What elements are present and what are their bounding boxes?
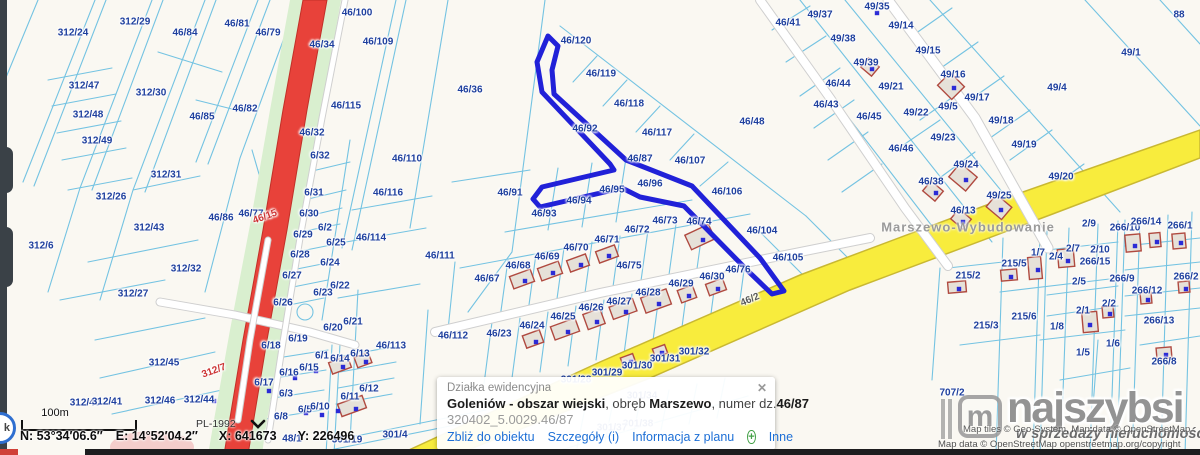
address-point	[1009, 275, 1013, 279]
parcel-label: 46/79	[255, 28, 280, 39]
parcel-label: 6/30	[299, 209, 318, 220]
parcel-label: 312/47	[69, 81, 100, 92]
address-point	[607, 254, 611, 258]
address-point	[523, 279, 527, 283]
coordinates-readout: N: 53°34′06.6″ E: 14°52′04.2″ X: 641673 …	[20, 429, 354, 443]
parcel-label: 1/7	[1031, 248, 1045, 259]
address-point	[364, 360, 368, 364]
parcel-label: 46/120	[561, 36, 592, 47]
parcel-label: 46/45	[856, 112, 881, 123]
address-point	[551, 271, 555, 275]
parcel-label: 46/93	[531, 209, 556, 220]
parcel-label: 46/95	[599, 185, 624, 196]
parcel-label: 46/91	[497, 188, 522, 199]
parcel-label: 312/44	[184, 395, 215, 406]
plus-circle-icon[interactable]: +	[747, 430, 755, 444]
parcel-label: 301/32	[679, 347, 710, 358]
parcel-label: 6/21	[343, 317, 362, 328]
address-point	[1088, 323, 1092, 327]
map-attribution-tiles: Map tiles © Geo-System, Map data © OpenS…	[963, 424, 1190, 435]
parcel-label: 46/81	[224, 19, 249, 30]
parcel-label: 6/24	[320, 258, 339, 269]
address-point	[341, 365, 345, 369]
parcel-label: 49/20	[1048, 172, 1073, 183]
parcel-label: 46/13	[950, 206, 975, 217]
parcel-label: 6/11	[341, 392, 360, 403]
coord-e: E: 14°52′04.2″	[116, 429, 198, 443]
address-point	[957, 287, 961, 291]
parcel-label: 312/45	[149, 358, 180, 369]
watermark-logo-bars	[941, 399, 955, 439]
parcel-label: 46/96	[637, 179, 662, 190]
parcel-label: 49/17	[964, 93, 989, 104]
address-point	[1184, 287, 1188, 291]
parcel-label: 49/25	[986, 191, 1011, 202]
address-point	[687, 294, 691, 298]
parcel-label: 46/32	[299, 128, 324, 139]
parcel-label: 6/3	[279, 389, 293, 400]
parcel-label: 46/69	[534, 252, 559, 263]
popup-district: Marszewo	[649, 396, 711, 411]
chevron-down-icon[interactable]	[250, 419, 266, 429]
building-footprint	[1028, 256, 1043, 279]
parcel-label: 312/32	[171, 264, 202, 275]
parcel-label: 46/74	[686, 217, 711, 228]
address-point	[624, 310, 628, 314]
parcel-label: 49/38	[830, 34, 855, 45]
address-point	[657, 302, 661, 306]
parcel-label: 6/29	[293, 230, 312, 241]
parcel-label: 6/31	[304, 188, 323, 199]
bottom-edge-bar-red	[0, 449, 18, 455]
details-link[interactable]: Szczegóły (i)	[548, 430, 620, 444]
parcel-label: 312/29	[120, 17, 151, 28]
parcel-label: 46/100	[342, 8, 373, 19]
close-icon[interactable]: ✕	[757, 382, 767, 394]
parcel-label: 2/9	[1082, 219, 1096, 230]
parcel-label: 49/19	[1011, 140, 1036, 151]
parcel-label: 46/86	[208, 213, 233, 224]
buildings	[329, 58, 1190, 417]
parcel-label: 266/13	[1144, 316, 1175, 327]
left-toolbar-button-2[interactable]	[0, 227, 13, 287]
parcel-label: 46/113	[376, 341, 406, 352]
parcel-label: 6/18	[261, 341, 280, 352]
parcel-label: 49/18	[988, 116, 1013, 127]
parcel-label: 6/28	[290, 250, 309, 261]
parcel-label: 46/85	[189, 112, 214, 123]
parcel-label: 46/34	[309, 40, 334, 51]
parcel-label: 46/116	[373, 188, 403, 199]
parcel-label: 49/15	[915, 46, 940, 57]
parcel-label: 6/26	[273, 298, 292, 309]
parcel-label: 1/6	[1106, 339, 1120, 350]
coord-x: X: 641673	[219, 429, 277, 443]
address-point	[1146, 298, 1150, 302]
popup-parcel-id: 320402_5.0029.46/87	[447, 412, 766, 427]
selected-parcel-outline[interactable]	[533, 36, 784, 294]
parcel-label: 46/71	[594, 235, 619, 246]
parcel-label: 6/22	[330, 281, 349, 292]
parcel-label: 46/119	[586, 69, 616, 80]
parcel-label: 312/46	[145, 396, 176, 407]
address-point	[566, 330, 570, 334]
address-point	[1155, 240, 1159, 244]
parcel-label: 215/5	[1001, 259, 1026, 270]
parcel-label: 46/112	[438, 331, 468, 342]
parcel-label: 46/68	[505, 261, 530, 272]
parcel-label: 312/26	[96, 192, 127, 203]
parcel-label: 46/118	[614, 99, 644, 110]
address-point	[336, 409, 340, 413]
parcel-label: 266/12	[1132, 286, 1163, 297]
address-point	[1179, 241, 1183, 245]
parcel-label: 46/109	[363, 37, 394, 48]
parcel-label: 46/38	[918, 177, 943, 188]
parcel-label: 49/37	[807, 10, 832, 21]
zoom-to-object-link[interactable]: Zbliż do obiektu	[447, 430, 535, 444]
parcel-label: 6/12	[359, 384, 378, 395]
address-point	[1066, 259, 1070, 263]
building-footprint	[537, 261, 562, 281]
parcel-label: 46/23	[486, 329, 511, 340]
parcel-label: 6/25	[326, 238, 345, 249]
address-point	[716, 287, 720, 291]
building-footprint	[509, 269, 534, 289]
address-point	[701, 238, 705, 242]
parcel-label: 6/32	[310, 151, 329, 162]
parcel-label: 46/41	[775, 18, 800, 29]
parcel-label: 46/67	[474, 274, 499, 285]
coord-n: N: 53°34′06.6″	[20, 429, 103, 443]
parcel-label: 49/39	[853, 58, 878, 69]
parcel-label: 46/115	[331, 101, 361, 112]
parcel-label: 1/8	[1050, 322, 1064, 333]
left-toolbar-button-1[interactable]	[0, 147, 13, 193]
address-point	[354, 407, 358, 411]
parcel-label: 2/1	[1076, 306, 1090, 317]
parcel-label: 46/94	[566, 196, 591, 207]
parcel-label: 215/2	[955, 271, 980, 282]
parcel-label: 6/17	[254, 378, 273, 389]
parcel-info-popup: Działka ewidencyjna ✕ Goleniów - obszar …	[437, 377, 775, 450]
parcel-label: 2/4	[1049, 252, 1063, 263]
parcel-label: 6/19	[288, 334, 307, 345]
parcel-label: 312/27	[118, 289, 149, 300]
parcel-label: 6/1	[315, 351, 329, 362]
popup-municipality: Goleniów - obszar wiejski	[447, 396, 605, 411]
parcel-label: 46/72	[624, 225, 649, 236]
parcel-label: 49/5	[938, 102, 957, 113]
place-name-label: Marszewo-Wybudowanie	[881, 220, 1055, 235]
bottom-edge-bar	[85, 449, 1200, 455]
parcel-label: 46/92	[572, 124, 597, 135]
parcel-label: 46/43	[813, 100, 838, 111]
address-point	[964, 178, 968, 182]
parcel-label: 6/15	[299, 363, 318, 374]
parcel-label: 46/111	[425, 251, 454, 262]
parcel-label: 266/14	[1131, 217, 1162, 228]
parcel-label: 2/5	[1072, 277, 1086, 288]
parcel-label: 49/4	[1047, 83, 1066, 94]
building-footprint	[1125, 234, 1141, 252]
parcel-label: 215/6	[1011, 312, 1036, 323]
address-point	[1036, 268, 1040, 272]
parcel-label: 6/27	[282, 271, 301, 282]
address-point	[267, 389, 271, 393]
parcel-label: 49/21	[878, 82, 903, 93]
parcel-label: 6/8	[274, 412, 288, 423]
parcel-label: 2/7	[1066, 244, 1080, 255]
address-point	[999, 208, 1003, 212]
parcel-label: 49/23	[930, 133, 955, 144]
parcel-label: 46/26	[578, 303, 603, 314]
map-viewer[interactable]: 312/24312/2946/8446/8146/79312/47312/304…	[0, 0, 1200, 455]
parcel-label: 6/20	[323, 323, 342, 334]
building-footprint	[567, 254, 590, 272]
parcel-label: 215/3	[973, 321, 998, 332]
parcel-label: 49/16	[940, 70, 965, 81]
coord-y: Y: 226496	[298, 429, 355, 443]
address-point	[534, 340, 538, 344]
scale-label: 100m	[41, 407, 69, 419]
parcel-label: 49/22	[903, 108, 928, 119]
parcel-label: 46/75	[616, 261, 641, 272]
parcel-label: 46/104	[747, 226, 778, 237]
parcel-label: 6/14	[330, 354, 349, 365]
parcel-label: 88	[1173, 10, 1184, 21]
parcel-label: 6/13	[350, 349, 369, 360]
parcel-label: 312/6	[28, 241, 53, 252]
address-point	[934, 191, 938, 195]
parcel-label: 46/46	[888, 144, 913, 155]
parcel-label: 6/10	[310, 402, 329, 413]
parcel-label: 266/2	[1173, 272, 1198, 283]
parcel-label: 46/36	[457, 85, 482, 96]
popup-parcel-number: 46/87	[776, 396, 809, 411]
parcel-label: 46/28	[635, 288, 660, 299]
parcel-label: 46/82	[232, 104, 257, 115]
building-footprint	[685, 224, 715, 249]
parcel-label: 312/41	[92, 397, 123, 408]
parcel-label: 312/24	[58, 28, 89, 39]
parcel-label: 6/23	[313, 288, 332, 299]
parcel-label: 301/4	[382, 430, 407, 441]
parcel-label: 266/9	[1109, 274, 1134, 285]
parcel-label: 6/2	[318, 223, 332, 234]
parcel-label: 46/76	[725, 265, 750, 276]
parcel-label: 46/114	[356, 233, 386, 244]
parcel-label: 46/107	[675, 156, 706, 167]
parcel-label: 46/27	[606, 297, 631, 308]
parcel-label: 46/44	[825, 79, 850, 90]
address-point	[595, 320, 599, 324]
parcel-label: 1/5	[1076, 348, 1090, 359]
popup-parcel-description: Goleniów - obszar wiejski, obręb Marszew…	[447, 396, 766, 411]
address-point	[579, 263, 583, 267]
parcel-label: 46/106	[712, 187, 743, 198]
parcel-label: 49/1	[1121, 48, 1140, 59]
nav-glyph: k	[4, 422, 10, 434]
plan-info-link[interactable]: Informacja z planu	[632, 430, 734, 444]
address-point	[320, 413, 324, 417]
parcel-label: 312/48	[73, 110, 104, 121]
parcel-label: 266/8	[1151, 357, 1176, 368]
popup-title: Działka ewidencyjna	[447, 382, 766, 394]
parcel-label: 46/29	[668, 279, 693, 290]
parcel-label: 46/84	[172, 28, 197, 39]
parcel-label: 46/110	[392, 154, 422, 165]
parcel-label: 301/30	[622, 361, 653, 372]
parcel-label: 49/24	[953, 160, 978, 171]
address-point	[1133, 244, 1137, 248]
parcel-label: 46/73	[652, 216, 677, 227]
parcel-label: 46/48	[739, 117, 764, 128]
parcel-label: 312/31	[151, 170, 182, 181]
address-point	[1108, 312, 1112, 316]
parcel-label: 49/35	[864, 2, 889, 13]
parcel-label: 2/2	[1102, 299, 1116, 310]
parcel-label: 312/30	[136, 88, 167, 99]
parcel-label: 46/105	[773, 253, 804, 264]
address-point	[952, 86, 956, 90]
parcel-label: 46/25	[550, 312, 575, 323]
parcel-label: 266/15	[1080, 257, 1111, 268]
parcel-label: 46/70	[563, 243, 588, 254]
parcel-label: 2/10	[1090, 245, 1109, 256]
parcel-label: 266/1	[1167, 221, 1192, 232]
parcel-label: 6/16	[279, 368, 298, 379]
parcel-label: 301/31	[650, 354, 681, 365]
more-link[interactable]: Inne	[769, 430, 793, 444]
parcel-label: 46/87	[627, 154, 652, 165]
parcel-label: 312/49	[82, 136, 113, 147]
parcel-label: 49/14	[888, 21, 913, 32]
parcel-label: 46/24	[519, 321, 544, 332]
parcel-label: 46/30	[699, 272, 724, 283]
parcel-label: 312/43	[134, 223, 165, 234]
parcel-label: 46/117	[642, 128, 672, 139]
building-footprint	[522, 330, 543, 348]
